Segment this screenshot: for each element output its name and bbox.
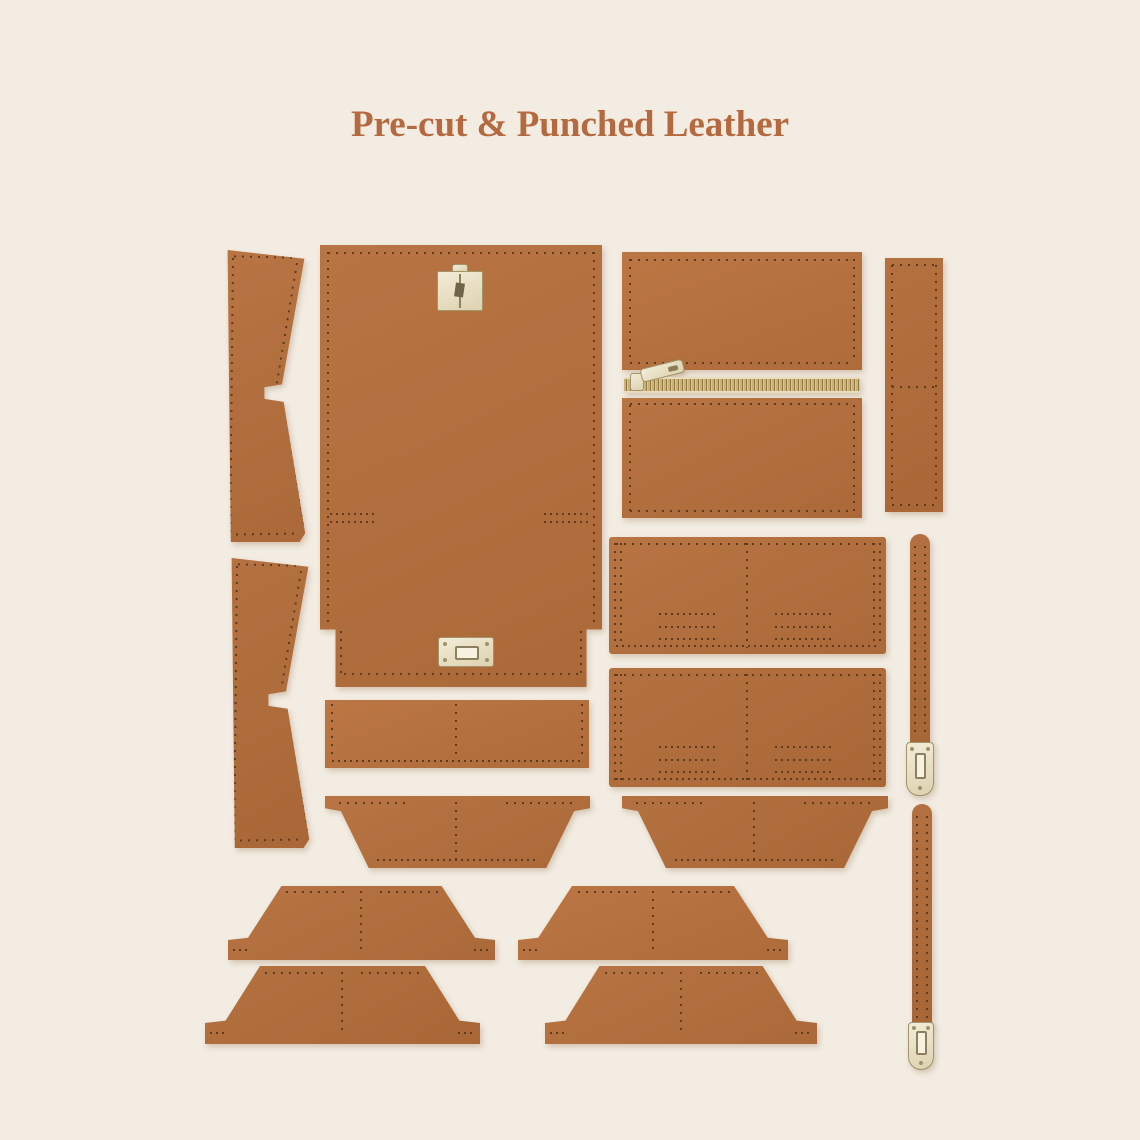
stitch-line [753, 802, 755, 860]
card-slot-stitch [659, 626, 717, 628]
stitch-line [605, 972, 663, 974]
stitch-line [614, 543, 616, 647]
stitch-line [873, 543, 875, 647]
rivet [912, 1026, 916, 1030]
stitch-line [675, 859, 835, 861]
side-gusset-panel-2 [230, 558, 310, 848]
leather-shape [622, 398, 862, 518]
stitch-line [361, 972, 421, 974]
stitch-line [286, 891, 344, 893]
side-panel-2 [518, 886, 788, 960]
stitch-line [892, 504, 936, 506]
stitch-line [332, 760, 582, 762]
stitch-line [265, 972, 325, 974]
leather-shape [609, 537, 886, 654]
base-panel-left [325, 796, 590, 868]
stitch-line [360, 891, 362, 951]
zipper-teeth [624, 377, 860, 393]
stitch-line [380, 891, 438, 893]
rivet [910, 747, 914, 751]
zipper-pocket-lower-panel [622, 398, 862, 518]
leather-shape [205, 966, 480, 1044]
turnlock-tab [452, 264, 468, 272]
closure-strap-2 [912, 804, 932, 1028]
strap-metal-tip-2 [908, 1022, 934, 1070]
stitch-line [236, 532, 298, 535]
leather-shape [325, 796, 590, 868]
stitch-line [767, 949, 783, 951]
card-slot-stitch [775, 626, 833, 628]
photo-canvas: { "title": "Pre-cut & Punched Leather", … [0, 0, 1140, 1140]
stitch-line [873, 674, 875, 780]
rivet [926, 1026, 930, 1030]
rivet [926, 747, 930, 751]
rivet [919, 1061, 923, 1065]
stitch-line [636, 802, 706, 804]
turnlock-clasp-plate [437, 271, 483, 311]
stitch-line [344, 673, 578, 675]
leather-shape [320, 245, 602, 687]
card-slot-stitch [659, 759, 717, 761]
stitch-line [924, 546, 926, 736]
leather-shape [230, 558, 310, 848]
stitch-line [341, 972, 343, 1035]
stitch-line [879, 674, 881, 780]
stitch-line [331, 704, 333, 760]
base-panel-right [622, 796, 888, 868]
stitch-line [629, 259, 631, 363]
leather-shape [226, 250, 306, 542]
stitch-line [614, 674, 616, 780]
strap-tip-slot [915, 753, 926, 779]
rivet [443, 658, 447, 662]
leather-shape [518, 886, 788, 960]
stitch-line [458, 1032, 474, 1034]
stitch-line [377, 859, 537, 861]
rivet [485, 658, 489, 662]
stitch-line [926, 816, 928, 1018]
rivet [918, 786, 922, 790]
stitch-line [935, 265, 937, 505]
leather-shape [609, 668, 886, 787]
stitch-line [746, 543, 748, 648]
page-title: Pre-cut & Punched Leather [0, 103, 1140, 146]
card-slot-stitch [659, 746, 717, 748]
interior-pocket-panel-1 [609, 537, 886, 654]
stitch-line [234, 255, 292, 258]
stitch-line [284, 404, 305, 525]
stitch-line [891, 265, 893, 505]
stitch-line [588, 631, 600, 633]
card-slot-stitch [659, 771, 717, 773]
stitch-line [916, 816, 918, 1018]
card-slot-stitch [775, 638, 833, 640]
interior-pocket-panel-2 [609, 668, 886, 787]
stitch-line [276, 263, 298, 384]
pocket-band-panel [325, 700, 589, 768]
stitch-line [795, 1032, 811, 1034]
stitch-line [914, 546, 916, 736]
card-slot-stitch [659, 613, 717, 615]
stitch-line [506, 802, 576, 804]
stitch-line [804, 802, 874, 804]
stitch-line [550, 1032, 566, 1034]
leather-shape [622, 252, 862, 370]
stitch-line [580, 631, 582, 677]
stitch-line [629, 405, 631, 511]
metal-zipper [622, 368, 862, 398]
main-body-panel [320, 245, 602, 687]
stitch-line [238, 563, 296, 566]
stitch-line [620, 543, 622, 647]
stitch-line [581, 704, 583, 760]
card-slot-stitch [775, 613, 833, 615]
strap-metal-tip-1 [906, 742, 934, 796]
leather-shape [885, 258, 943, 512]
stitch-line [853, 405, 855, 511]
leather-shape [325, 700, 589, 768]
strap-tip-slot [916, 1031, 927, 1055]
stitch-line [892, 264, 936, 266]
stitch-line [455, 704, 457, 760]
stitch-line [327, 252, 329, 624]
stitch-line [680, 972, 682, 1035]
stitch-line [288, 710, 309, 831]
stitch-line [339, 802, 409, 804]
handle-mark-stitch [330, 521, 378, 523]
turnlock-prong [454, 282, 465, 297]
stitch-line [578, 891, 636, 893]
card-slot-stitch [775, 771, 833, 773]
stitch-line [620, 674, 622, 780]
back-strip-panel [885, 258, 943, 512]
stitch-line [652, 891, 654, 951]
stitch-line [240, 838, 302, 841]
handle-mark-stitch [330, 513, 378, 515]
zipper-pocket-upper-panel [622, 252, 862, 370]
stitch-line [630, 403, 854, 405]
stitch-line [746, 674, 748, 781]
card-slot-stitch [659, 638, 717, 640]
stitch-line [455, 802, 457, 860]
leather-shape [545, 966, 817, 1044]
turnlock-base-plate [438, 637, 494, 667]
stitch-line [630, 259, 854, 261]
stitch-line [210, 1032, 226, 1034]
rivet [485, 642, 489, 646]
stitch-line [630, 510, 854, 512]
leather-shape [228, 886, 495, 960]
leather-shape [910, 534, 930, 746]
side-panel-4 [545, 966, 817, 1044]
stitch-line [593, 252, 595, 624]
stitch-line [879, 543, 881, 647]
stitch-line [340, 631, 342, 677]
turnlock-slot [455, 646, 479, 660]
stitch-line [672, 891, 730, 893]
side-gusset-panel-1 [226, 250, 306, 542]
stitch-line [280, 571, 302, 690]
leather-shape [912, 804, 932, 1028]
handle-mark-stitch [544, 513, 592, 515]
stitch-line [233, 949, 249, 951]
closure-strap-1 [910, 534, 930, 746]
card-slot-stitch [775, 759, 833, 761]
stitch-line [229, 258, 234, 534]
stitch-line [474, 949, 490, 951]
side-panel-3 [205, 966, 480, 1044]
stitch-line [853, 259, 855, 363]
stitch-line [700, 972, 758, 974]
leather-shape [622, 796, 888, 868]
stitch-line [328, 252, 594, 254]
rivet [443, 642, 447, 646]
stitch-line [233, 566, 238, 840]
stitch-line [892, 386, 936, 388]
handle-mark-stitch [544, 521, 592, 523]
side-panel-1 [228, 886, 495, 960]
zipper-pull-hole [668, 365, 679, 372]
stitch-line [322, 631, 334, 633]
card-slot-stitch [775, 746, 833, 748]
stitch-line [523, 949, 539, 951]
